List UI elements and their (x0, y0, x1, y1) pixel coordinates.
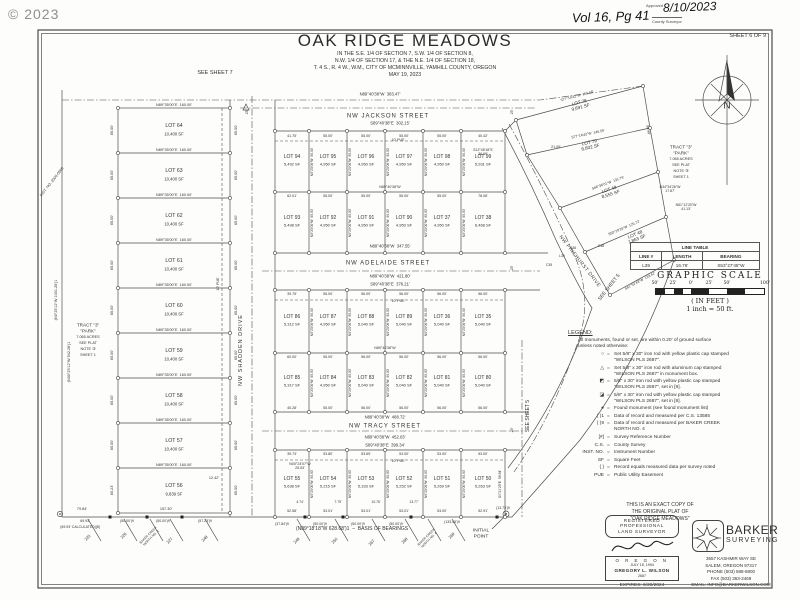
dim-label: 65.00' (234, 260, 238, 270)
see-sheet-5-label: SEE SHEET 5 (526, 400, 532, 432)
dim-label: 55.00' (323, 355, 333, 359)
dim-label: 25' (510, 266, 514, 271)
dim-label: 65.00' (234, 125, 238, 135)
lot-label: LOT 89 (396, 315, 413, 321)
lot-label: LOT 35 (475, 315, 492, 321)
see-sheet-7-label: SEE SHEET 7 (197, 70, 232, 76)
record-dim-label: (13.73')9 (496, 506, 510, 510)
lot-label: LOT 93 (284, 216, 301, 222)
lot-area: 4,950 SF (358, 224, 374, 229)
bearing-label: N89°35'00"E 160.00' (156, 147, 192, 151)
bearing-label: S89°40'38"E 302.15' (370, 122, 409, 127)
adjacent-lot-number: 269 (448, 532, 456, 540)
lot-area: 5,040 SF (475, 384, 491, 389)
adjacent-lot-number: 267 (368, 539, 376, 547)
lot-area: 10,400 SF (164, 447, 183, 452)
lot-label: LOT 96 (358, 155, 375, 161)
bearing-label: N0°25'00"W 90.00' (463, 147, 467, 176)
dim-label: 55.00' (323, 194, 333, 198)
lot-label: LOT 61 (165, 259, 182, 265)
lot-area: 5,040 SF (358, 384, 374, 389)
dim-label: 56.00' (399, 292, 409, 296)
dim-label: 56.00' (478, 292, 488, 296)
dim-label: 65.00' (110, 215, 114, 225)
bearing-label: N0°25'00"W 90.00' (463, 307, 467, 336)
dim-label: 25' (510, 428, 514, 433)
dim-label: 55.00' (361, 194, 371, 198)
dim-label: 56.00' (437, 406, 447, 410)
adjacent-lot-number: 249 (293, 537, 301, 545)
dim-label: 40.28' (287, 406, 297, 410)
dim-label: 53.00' (437, 509, 447, 513)
lot-area: 10,400 SF (164, 357, 183, 362)
lot-label: LOT 59 (165, 349, 182, 355)
street-name-pinehurst: NW PINEHURST DRIVE (557, 235, 601, 289)
bearing-label: N0°25'00"W 90.00' (311, 147, 315, 176)
lot-area: 10,400 SF (164, 177, 183, 182)
adjacent-lot-number: 248 (201, 535, 209, 543)
dim-label: 53.00' (478, 452, 488, 456)
tract-label: 7.065 ACRES (76, 335, 99, 339)
dim-label: 65.00' (110, 170, 114, 180)
map-label-layer: SEE SHEET 7SEE SHEET 5SEE SHEET 5NNW JAC… (0, 0, 800, 600)
dim-label: 65.00' (110, 440, 114, 450)
dim-label: 56.00' (478, 355, 488, 359)
lot-area: 4,950 SF (434, 163, 450, 168)
dim-label: 78.08' (478, 194, 488, 198)
curve-label: C38 (598, 245, 604, 249)
dim-label: 65.00' (234, 395, 238, 405)
lot-area: 9,839 SF (166, 492, 183, 497)
record-dim-label: (133.45')9 (444, 520, 460, 524)
lot-area: 10,400 SF (164, 402, 183, 407)
tract-label: TRACT "3" (77, 322, 99, 327)
dim-label: 53.65' (361, 452, 371, 456)
bearing-label: N89°40'38"W 347.55' (370, 245, 411, 250)
dim-label: 56.00' (437, 292, 447, 296)
dim-label: 60.00' (287, 355, 297, 359)
dim-label: 65.00' (234, 485, 238, 495)
bearing-label: N0°25'00"W 90.00' (311, 208, 315, 237)
street-name-tracy: NW TRACY STREET (349, 424, 421, 431)
dim-label: 7.75' (334, 501, 341, 505)
lot-label: LOT 57 (165, 439, 182, 445)
adjacent-lot-number: 250 (331, 537, 339, 545)
lot-label: LOT 63 (165, 169, 182, 175)
see-sheet-5-label: SEE SHEET 5 (598, 274, 622, 303)
bearing-label: S0°21'25"E 99.94' (499, 470, 503, 498)
lot-area: 4,950 SF (434, 224, 450, 229)
lot-label: LOT 90 (396, 216, 413, 222)
dim-label: 53.01' (399, 509, 409, 513)
lot-area: 5,498 SF (284, 224, 300, 229)
tract-label: TRACT "3" (670, 144, 692, 149)
lot-label: LOT 38 (475, 216, 492, 222)
bearing-label: N89°35'00"E 160.00' (156, 372, 192, 376)
lot-label: LOT 54 (320, 477, 337, 483)
dim-label: 39.75' (287, 292, 297, 296)
lot-label: LOT 84 (320, 376, 337, 382)
lot-area: 5,040 SF (434, 384, 450, 389)
dim-label: 157.30' (160, 507, 172, 511)
bearing-label: N51°12'20"W 41.13' (676, 203, 697, 211)
lot-area: 5,252 SF (396, 485, 412, 490)
dim-label: 55.00' (399, 194, 409, 198)
lot-area: 4,950 SF (320, 323, 336, 328)
lot-label: LOT 36 (434, 315, 451, 321)
dim-label: 65.00' (110, 350, 114, 360)
pue-label: 10' PUE (216, 277, 220, 290)
tract-label: "PARK" (80, 328, 95, 333)
bearing-label: N0°25'00"W 90.00' (425, 208, 429, 237)
bearing-label: N0°25'00"W 90.00' (463, 469, 467, 498)
street-name-jackson: NW JACKSON STREET (347, 114, 429, 121)
lot-area: 6,468 SF (475, 224, 491, 229)
instrument-number-label: INST. NO. 2000-0966 (39, 166, 65, 197)
bearing-label: N0°25'00"W 90.00' (463, 368, 467, 397)
lot-label: LOT 80 (475, 376, 492, 382)
record-dim-label: (37.84')9 (275, 522, 289, 526)
lot-area: 5,638 SF (284, 485, 300, 490)
lot-area: 4,950 SF (396, 224, 412, 229)
lot-area: 4,950 SF (320, 224, 336, 229)
bearing-label: N0°25'00"W 90.00' (387, 147, 391, 176)
adjacent-subdivision-label: BAKER CREEK NORTH NO. 3 (139, 526, 160, 547)
dim-label: 13.77' (409, 501, 418, 505)
dim-label: 53.00' (437, 452, 447, 456)
bearing-label: N89°40'38"W 452.03' (365, 436, 406, 441)
lot-label: LOT 51 (434, 477, 451, 483)
lot-area: 4,950 SF (358, 163, 374, 168)
bearing-label: N0°25'00"W 90.00' (349, 469, 353, 498)
lot-area: 5,040 SF (396, 323, 412, 328)
bearing-label: N89°40'38"W (379, 185, 400, 189)
bearing-label: N34°34'26"W 17.87' (660, 185, 681, 193)
bearing-label: N0°25'00"W 90.00' (349, 307, 353, 336)
tract-label: SHEET 1 (80, 353, 96, 357)
dim-label: 79.84' (77, 507, 87, 511)
lot-area: 10,400 SF (164, 132, 183, 137)
bearing-label: S12°45'18"E 36.99' (473, 148, 493, 156)
lot-label: LOT 56 (165, 484, 182, 490)
dim-label: 65.00' (110, 260, 114, 270)
dim-label: 65.00' (110, 305, 114, 315)
bearing-label: N89°35'00"E 160.00' (156, 192, 192, 196)
lot-label: LOT 79 8,802 SF (580, 138, 601, 152)
lot-area: 4,950 SF (320, 384, 336, 389)
lot-label: LOT 98 (434, 155, 451, 161)
initial-point-label: INITIAL POINT (473, 528, 489, 539)
bearing-label: N89°35'00"E 160.00' (156, 102, 192, 106)
lot-label: LOT 97 (396, 155, 413, 161)
lot-label: LOT 64 (165, 124, 182, 130)
lot-label: LOT 53 (358, 477, 375, 483)
lot-area: 5,040 SF (434, 323, 450, 328)
dim-label: 53.01' (361, 509, 371, 513)
lot-label: LOT 86 (284, 315, 301, 321)
lot-label: LOT 91 (358, 216, 375, 222)
dim-label: 25' (245, 110, 249, 115)
dim-label: 12.42' (209, 476, 219, 480)
lot-label: LOT 50 (475, 477, 492, 483)
lot-area: 5,040 SF (475, 323, 491, 328)
dim-label: 65.00' (110, 125, 114, 135)
dim-label: 21.05' (551, 145, 561, 149)
dim-label: 60.23' (110, 485, 114, 495)
dim-label: 65.00' (234, 170, 238, 180)
dim-label: 65.00' (234, 305, 238, 315)
bearing-label: N89°35'00"E 160.00' (156, 462, 192, 466)
dim-label: 56.00' (399, 406, 409, 410)
lot-label: LOT 58 (165, 394, 182, 400)
curve-label: L39 (559, 255, 565, 259)
dim-label: 41.75' (287, 134, 297, 138)
bearing-label: N0°25'00"W 90.00' (311, 469, 315, 498)
adjacent-lot-number: 268 (401, 537, 409, 545)
bearing-label: N89°35'00"E 160.00' (156, 282, 192, 286)
tract-label: NOTE ③ (673, 169, 688, 173)
bearing-label: N0°25'00"W 90.00' (387, 208, 391, 237)
lot-area: 5,215 SF (320, 485, 336, 490)
dim-label: 65.00' (110, 395, 114, 405)
bearing-label: N0°25'00"W 90.00' (311, 368, 315, 397)
north-arrow-letter: N (723, 100, 730, 112)
dim-label: 65.00' (234, 215, 238, 225)
lot-label: LOT 88 (358, 315, 375, 321)
bearing-label: N0°25'00"W 90.00' (349, 147, 353, 176)
bearing-label: (N0°25'12"W 1001.26')1 (54, 280, 58, 321)
lot-area: 5,931 SF (475, 163, 491, 168)
curve-label: C36 (570, 247, 576, 251)
bearing-label: S61°52'43"W 133.42' (624, 271, 656, 290)
dim-label: 65.00' (234, 350, 238, 360)
dim-label: 53.00' (399, 452, 409, 456)
dim-label: 56.00' (361, 355, 371, 359)
curve-label: C35 (546, 264, 552, 268)
bearing-label: N0°25'00"W 90.00' (311, 307, 315, 336)
lot-label: LOT 81 (434, 376, 451, 382)
lot-area: 5,312 SF (284, 323, 300, 328)
bearing-label: N0°25'00"W 90.00' (349, 208, 353, 237)
dim-label: 55.00' (361, 134, 371, 138)
dim-label: 55.00' (437, 134, 447, 138)
lot-area: 5,317 SF (284, 384, 300, 389)
basis-of-bearings-label: (N89°18'18"W 628.68')1 – BASIS OF BEARIN… (296, 527, 408, 533)
lot-label: LOT 52 (396, 477, 413, 483)
record-dim-label: (69.93' CALCULATED)[8] (60, 525, 100, 529)
lot-label: LOT 94 (284, 155, 301, 161)
dim-label: 25' (510, 110, 514, 115)
bearing-label: N00°24'07"W 25.53' (289, 462, 310, 470)
dim-label: 52.58' (287, 509, 297, 513)
street-name-adelaide: NW ADELAIDE STREET (346, 261, 430, 268)
dim-label: 55.00' (323, 406, 333, 410)
bearing-label: N89°35'00"E 160.00' (156, 417, 192, 421)
bearing-label: N0°25'00"W 90.00' (425, 307, 429, 336)
bearing-label: N0°25'00"W 90.00' (387, 307, 391, 336)
lot-area: 5,492 SF (284, 163, 300, 168)
plat-sheet: © 2023 Vol 16, Pg 41 Approved 8/10/2023 … (0, 0, 800, 600)
lot-label: LOT 87 (320, 315, 337, 321)
bearing-label: N0°25'00"W 90.00' (425, 368, 429, 397)
dim-label: 56.00' (478, 406, 488, 410)
lot-area: 5,333 SF (358, 485, 374, 490)
lot-label: LOT 82 (396, 376, 413, 382)
lot-label: LOT 48 7,863 SF (625, 229, 646, 246)
lot-area: 5,040 SF (396, 384, 412, 389)
lot-area: 5,040 SF (358, 323, 374, 328)
dim-label: 56.00' (399, 355, 409, 359)
lot-label: LOT 62 (165, 214, 182, 220)
dim-label: 4.74' (296, 501, 303, 505)
dim-label: 65.00' (234, 440, 238, 450)
lot-label: LOT 78 9,691 SF (570, 97, 591, 112)
bearing-label: S89°40'38"E 399.34' (365, 443, 404, 448)
bearing-label: S89°40'38"E 376.21' (370, 282, 409, 287)
dim-label: 55.00' (323, 134, 333, 138)
bearing-label: N89°40'38"W 421.80' (370, 275, 411, 280)
dim-label: 53.01' (323, 509, 333, 513)
adjacent-subdivision-label: BAKER CREEK NORTH NO. 4 (417, 528, 438, 549)
bearing-label: N0°25'00"W 90.00' (387, 368, 391, 397)
bearing-label: N0°25'00"W 90.00' (425, 469, 429, 498)
dim-label: 39.73' (287, 452, 297, 456)
lot-area: 10,400 SF (164, 267, 183, 272)
lot-label: LOT 55 (284, 477, 301, 483)
bearing-label: N0°25'00"W 90.00' (387, 469, 391, 498)
bearing-label: N89°35'00"E 160.00' (156, 327, 192, 331)
adjacent-lot-number: 225 (84, 534, 92, 542)
dim-label: 56.00' (361, 406, 371, 410)
bearing-label: N89°40'38"W (374, 346, 395, 350)
tract-label: SHEET 1 (673, 175, 689, 179)
dim-label: 62.01' (287, 194, 297, 198)
lot-label: LOT 85 (284, 376, 301, 382)
lot-area: 10,400 SF (164, 222, 183, 227)
dim-label: 52.91' (478, 509, 488, 513)
lot-label: LOT 60 (165, 304, 182, 310)
record-dim-label: (50.00')9 (120, 519, 134, 523)
lot-label: LOT 95 (320, 155, 337, 161)
pue-label: 10' PUE (391, 138, 404, 142)
dim-label: 56.00' (437, 355, 447, 359)
bearing-label: N89°40'38"W 488.72' (365, 416, 406, 421)
tract-label: SEE PLAT (672, 163, 690, 167)
street-name-shadden: NW SHADDEN DRIVE (238, 314, 244, 386)
lot-label: LOT 83 (358, 376, 375, 382)
dim-label: 55.00' (437, 194, 447, 198)
bearing-label: N89°35'00"E 160.00' (156, 237, 192, 241)
bearing-label: N0°25'00"W 90.00' (463, 208, 467, 237)
dim-label: 54.49' (645, 125, 651, 135)
adjacent-lot-number: 227 (166, 537, 174, 545)
lot-area: 5,269 SF (434, 485, 450, 490)
tract-label: "PARK" (673, 150, 688, 155)
lot-area: 4,950 SF (396, 163, 412, 168)
dim-label: 40.42' (478, 134, 488, 138)
lot-area: 5,263 SF (475, 485, 491, 490)
bearing-label: N0°25'00"W 90.00' (349, 368, 353, 397)
pue-label: 10' PUE (391, 459, 404, 463)
pue-label: 10' PUE (391, 299, 404, 303)
bearing-label: N89°40'38"W 383.47' (360, 93, 401, 98)
record-dim-label: 69.93' (80, 519, 89, 523)
dim-label: 55.00' (323, 292, 333, 296)
bearing-label: S77°14'42"W 145.59' (571, 129, 605, 140)
bearing-label: N0°25'00"W 90.00' (425, 147, 429, 176)
lot-label: LOT 37 (434, 216, 451, 222)
lot-label: LOT 92 (320, 216, 337, 222)
adjacent-lot-number: 226 (120, 532, 128, 540)
dim-label: 56.00' (361, 292, 371, 296)
tract-label: 7.065 ACRES (669, 157, 692, 161)
dim-label: 10.76' (371, 501, 380, 505)
record-dim-label: (50.00')9 (156, 519, 170, 523)
bearing-label: (N00°25'12"W 942.28')1 (67, 342, 71, 383)
dim-label: 53.80' (323, 452, 333, 456)
lot-area: 4,950 SF (320, 163, 336, 168)
lot-area: 10,400 SF (164, 312, 183, 317)
record-dim-label: (57.23')9 (198, 519, 212, 523)
tract-label: SEE PLAT (79, 341, 97, 345)
tract-label: NOTE ③ (80, 347, 95, 351)
